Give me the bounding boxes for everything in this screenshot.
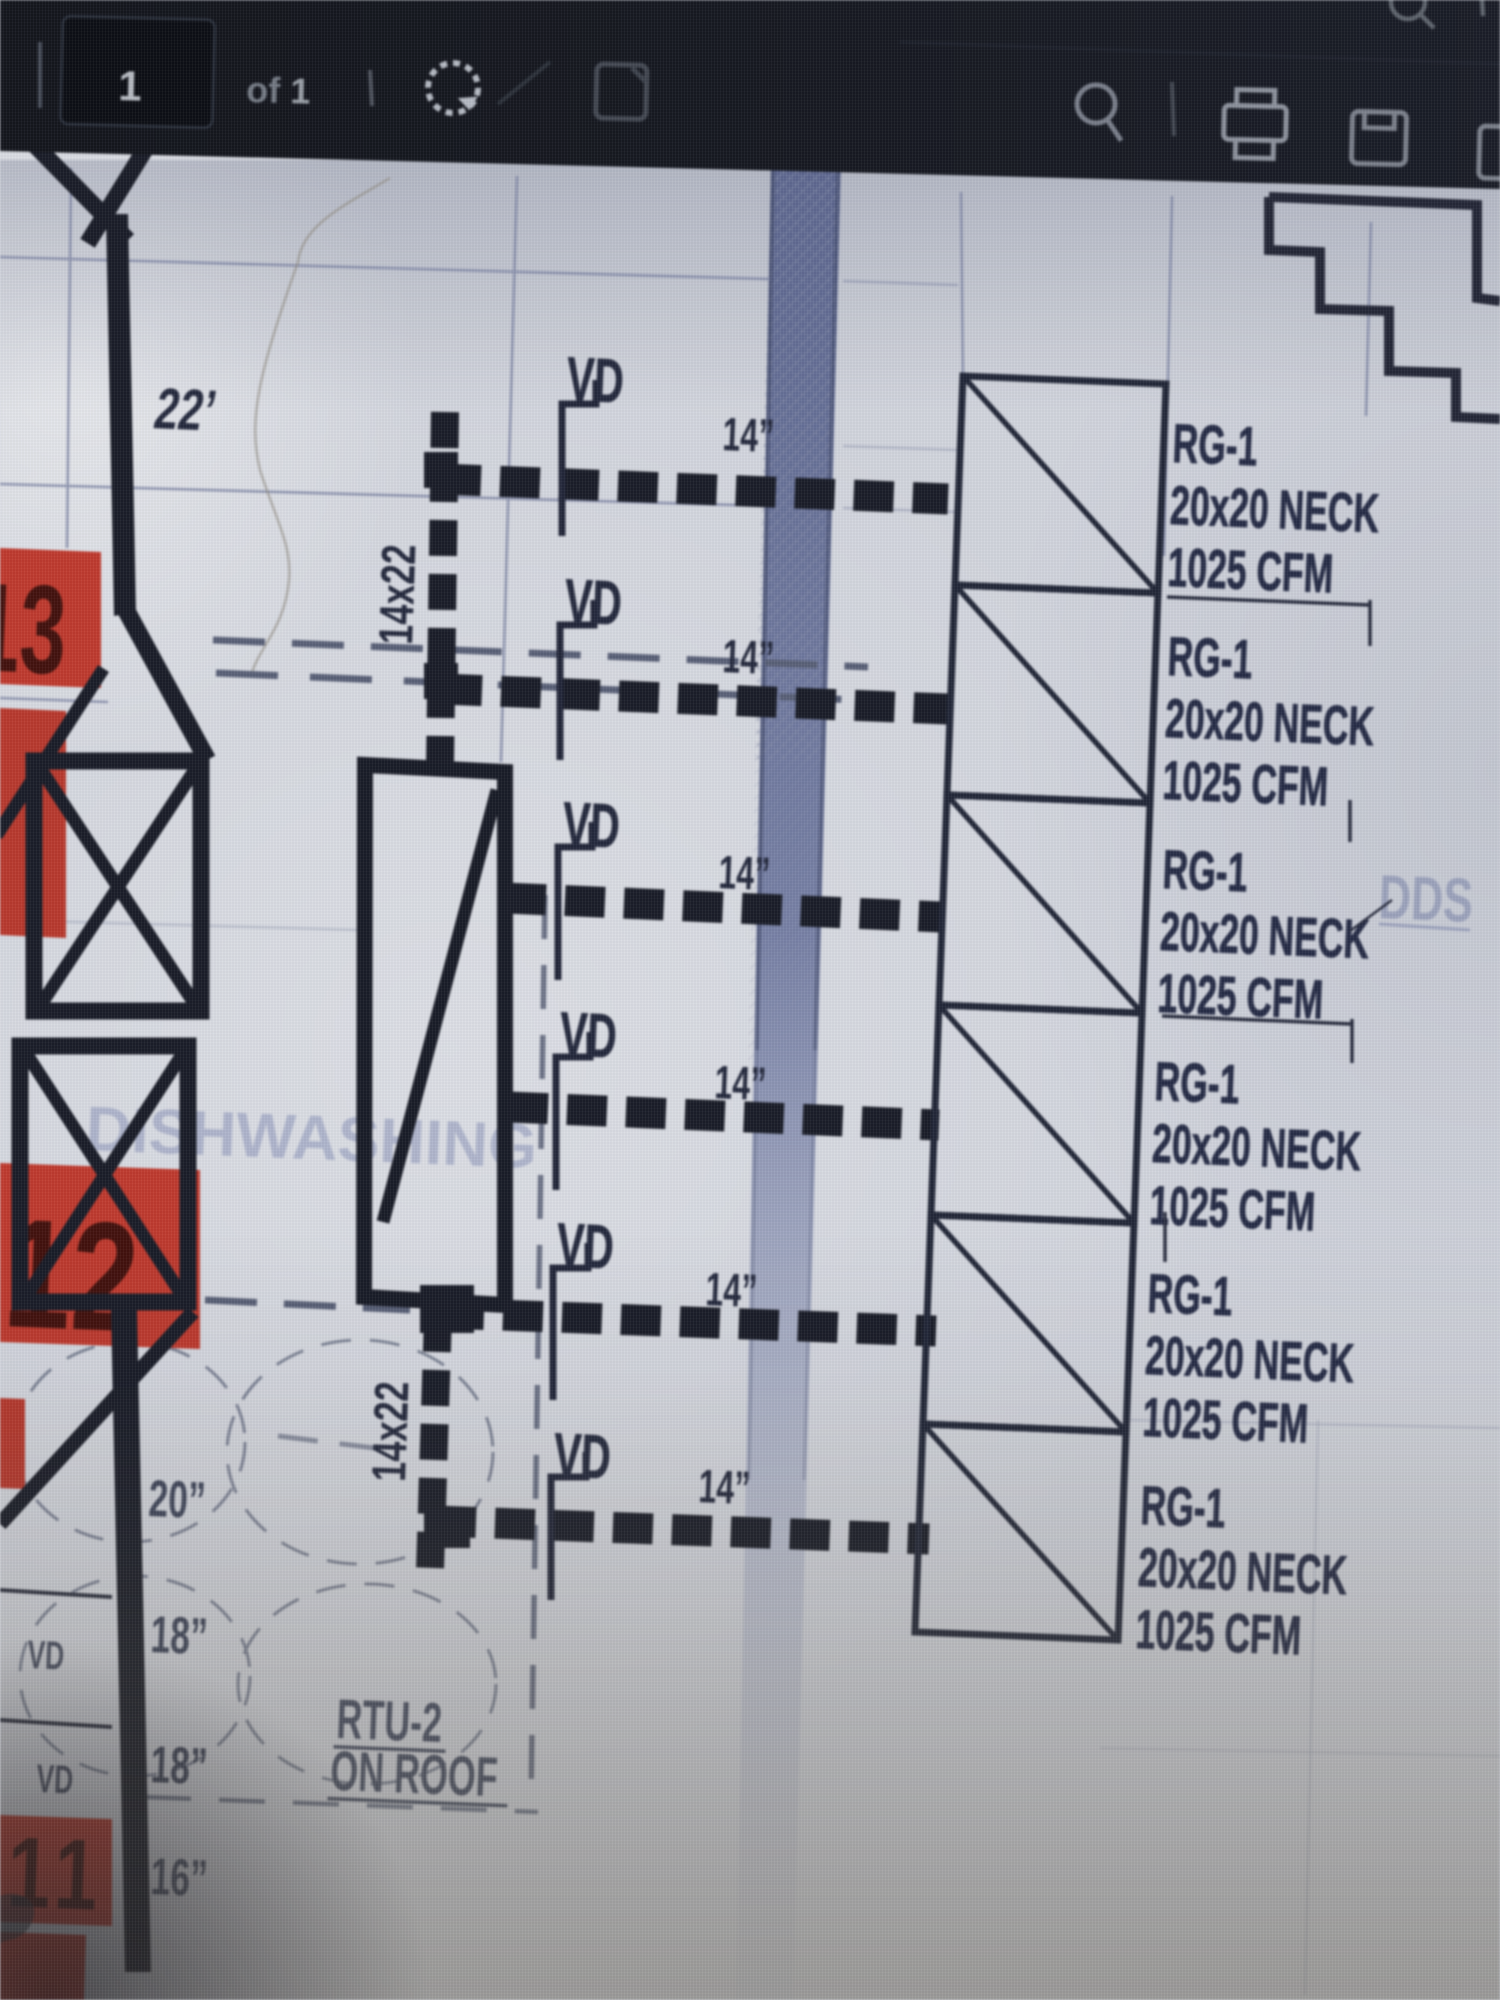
svg-text:1: 1 <box>118 62 143 110</box>
svg-text:VD: VD <box>561 790 621 862</box>
svg-text:14”: 14” <box>718 846 772 901</box>
svg-text:14”: 14” <box>714 1056 768 1111</box>
svg-text:14”: 14” <box>722 630 776 685</box>
svg-text:VD: VD <box>565 345 625 417</box>
svg-text:VD: VD <box>563 567 623 639</box>
svg-text:14x22: 14x22 <box>369 544 426 646</box>
svg-text:VD: VD <box>558 1000 618 1072</box>
svg-text:14”: 14” <box>722 408 776 463</box>
svg-text:22’: 22’ <box>150 376 221 443</box>
svg-text:of 1: of 1 <box>246 69 311 112</box>
svg-text:13: 13 <box>0 556 69 701</box>
